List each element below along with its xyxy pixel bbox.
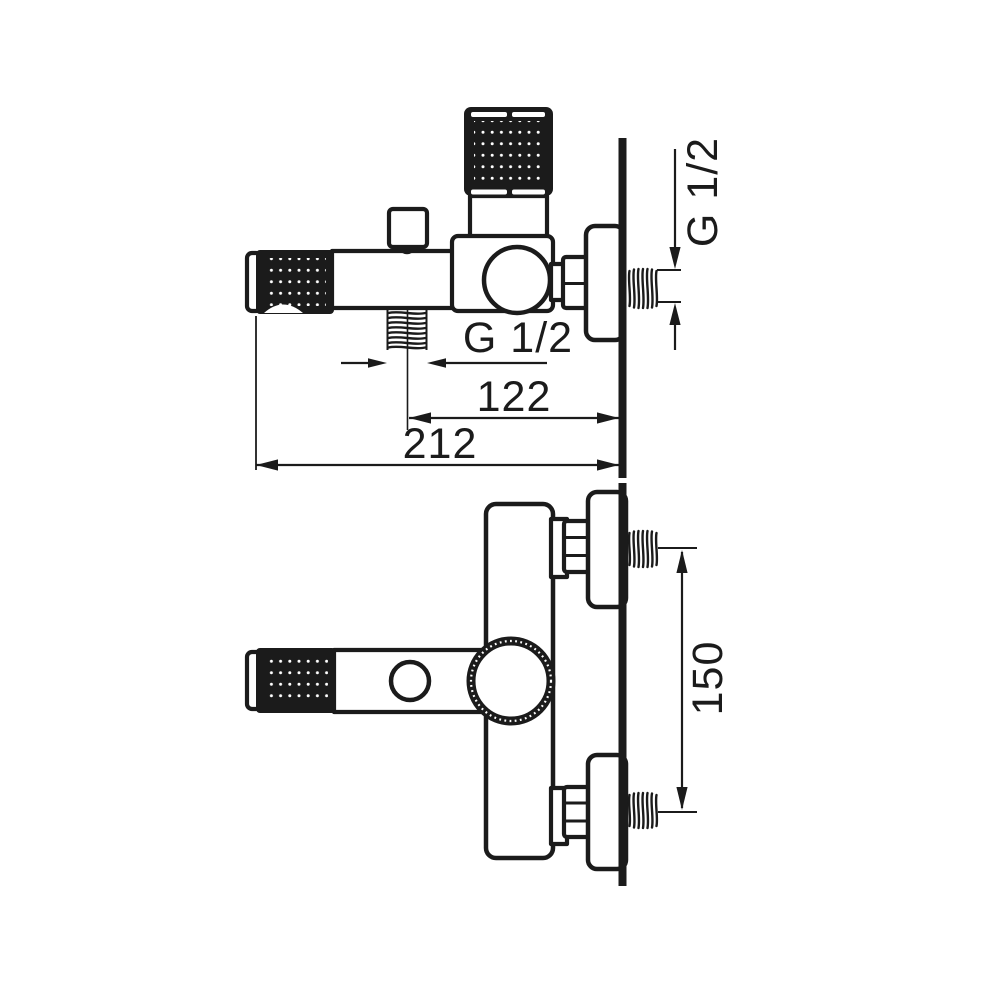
mixer-drawing-svg: G 1/2 122 212 G 1/2 <box>0 0 1000 1000</box>
lever-handle-top <box>247 250 334 314</box>
arrowhead-down-icon <box>669 247 680 269</box>
label-wall-thread-size: G 1/2 <box>679 137 727 247</box>
arrowhead-up-icon <box>669 303 680 325</box>
dimension-122: 122 <box>409 373 619 424</box>
dimension-outlet-thread: G 1/2 <box>341 314 573 368</box>
wall-plate-front-view <box>619 483 627 886</box>
cartridge-ring-front <box>471 641 551 721</box>
wall-thread-bottom <box>629 793 657 828</box>
arrowhead-right-icon <box>597 412 619 423</box>
dimension-150: 150 <box>658 548 732 812</box>
arrowhead-left-icon <box>256 459 278 470</box>
wall-plate-top-view <box>619 138 627 478</box>
valve-stem <box>470 196 547 240</box>
label-dim-212: 212 <box>403 420 478 468</box>
cap-highlight <box>512 112 545 117</box>
cartridge-circle-top <box>484 247 550 313</box>
knurl-dots <box>264 258 326 306</box>
arrowhead-left-icon <box>427 358 446 368</box>
label-dim-122: 122 <box>477 373 552 421</box>
dimension-212: 212 <box>256 420 619 471</box>
front-view: 150 <box>247 483 732 886</box>
technical-drawing: G 1/2 122 212 G 1/2 <box>0 0 1000 1000</box>
arrowhead-up-icon <box>676 550 687 573</box>
escutcheon-top-view <box>586 226 624 340</box>
knurled-cap <box>464 107 553 196</box>
cap-highlight <box>471 112 507 117</box>
label-outlet-thread-size: G 1/2 <box>463 314 573 362</box>
knurl-dots <box>474 121 543 183</box>
wall-thread <box>629 269 657 308</box>
wall-thread-top <box>629 531 657 567</box>
top-view: G 1/2 122 212 G 1/2 <box>247 107 727 478</box>
screw-hole-circle <box>391 662 429 700</box>
arrowhead-down-icon <box>676 787 687 810</box>
spout-arm <box>332 251 460 308</box>
cap-highlight <box>471 190 507 195</box>
knurl-dots <box>264 656 328 705</box>
diverter-knob <box>389 209 427 247</box>
dimension-wall-thread: G 1/2 <box>657 137 727 350</box>
arrowhead-right-icon <box>368 358 387 368</box>
cap-highlight <box>512 190 545 195</box>
lever-handle-front <box>247 648 336 713</box>
label-dim-150: 150 <box>684 641 732 716</box>
arrowhead-right-icon <box>597 459 619 470</box>
